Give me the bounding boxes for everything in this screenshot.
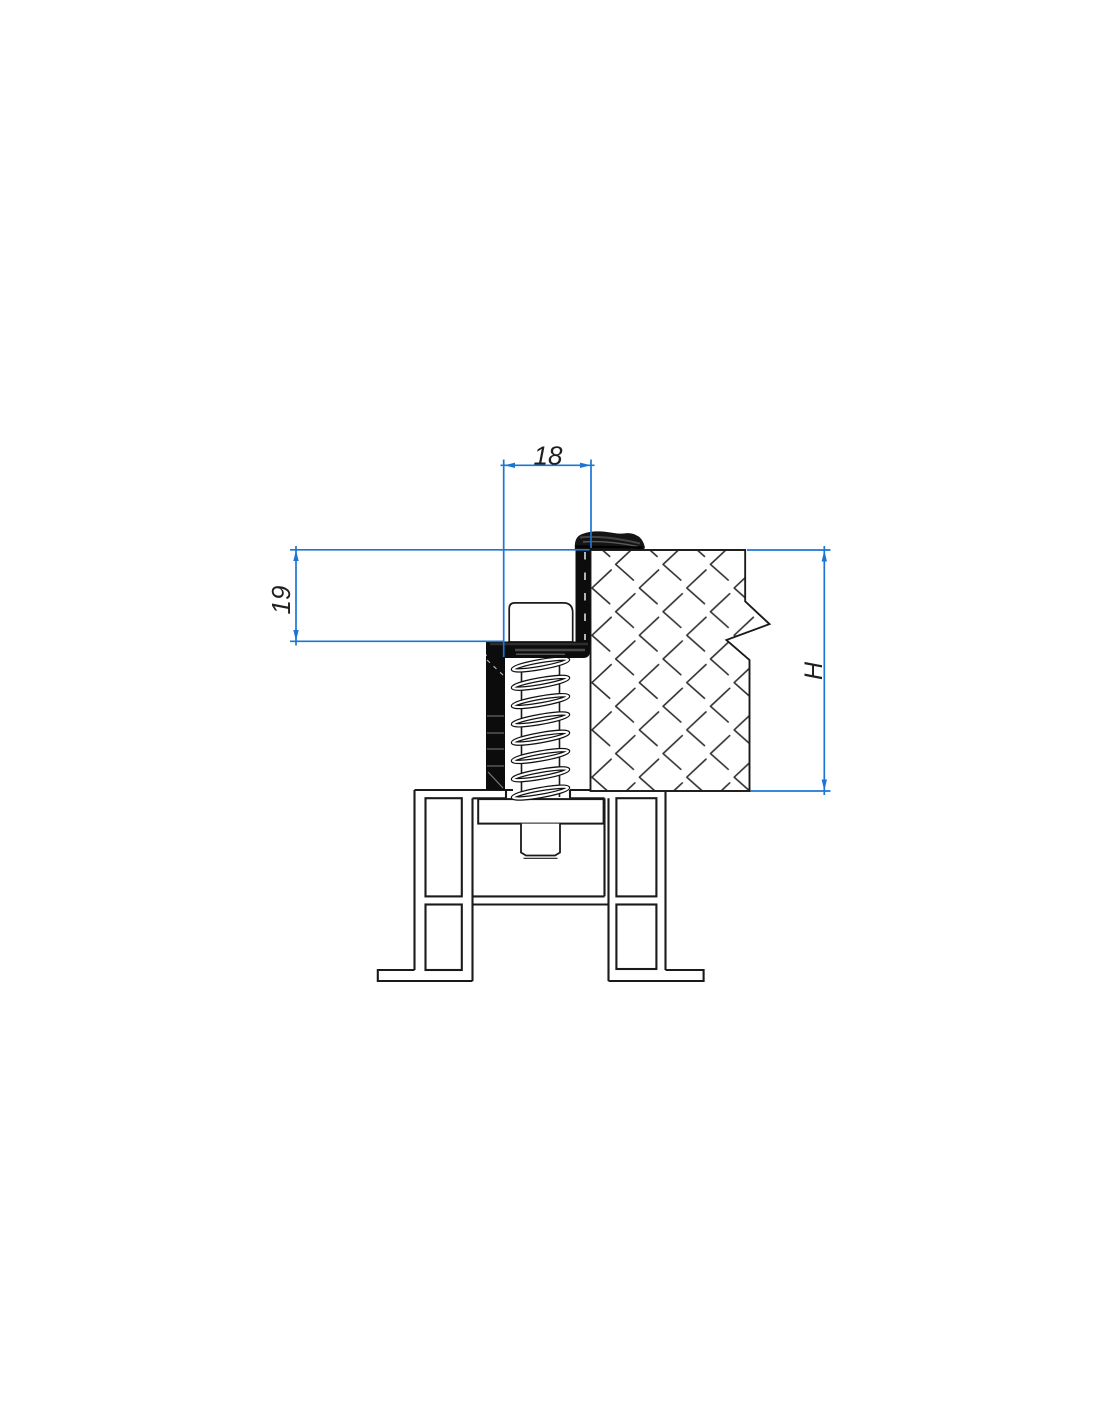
svg-text:19: 19 [266, 586, 296, 615]
svg-text:18: 18 [534, 441, 563, 471]
svg-text:H: H [800, 661, 828, 680]
